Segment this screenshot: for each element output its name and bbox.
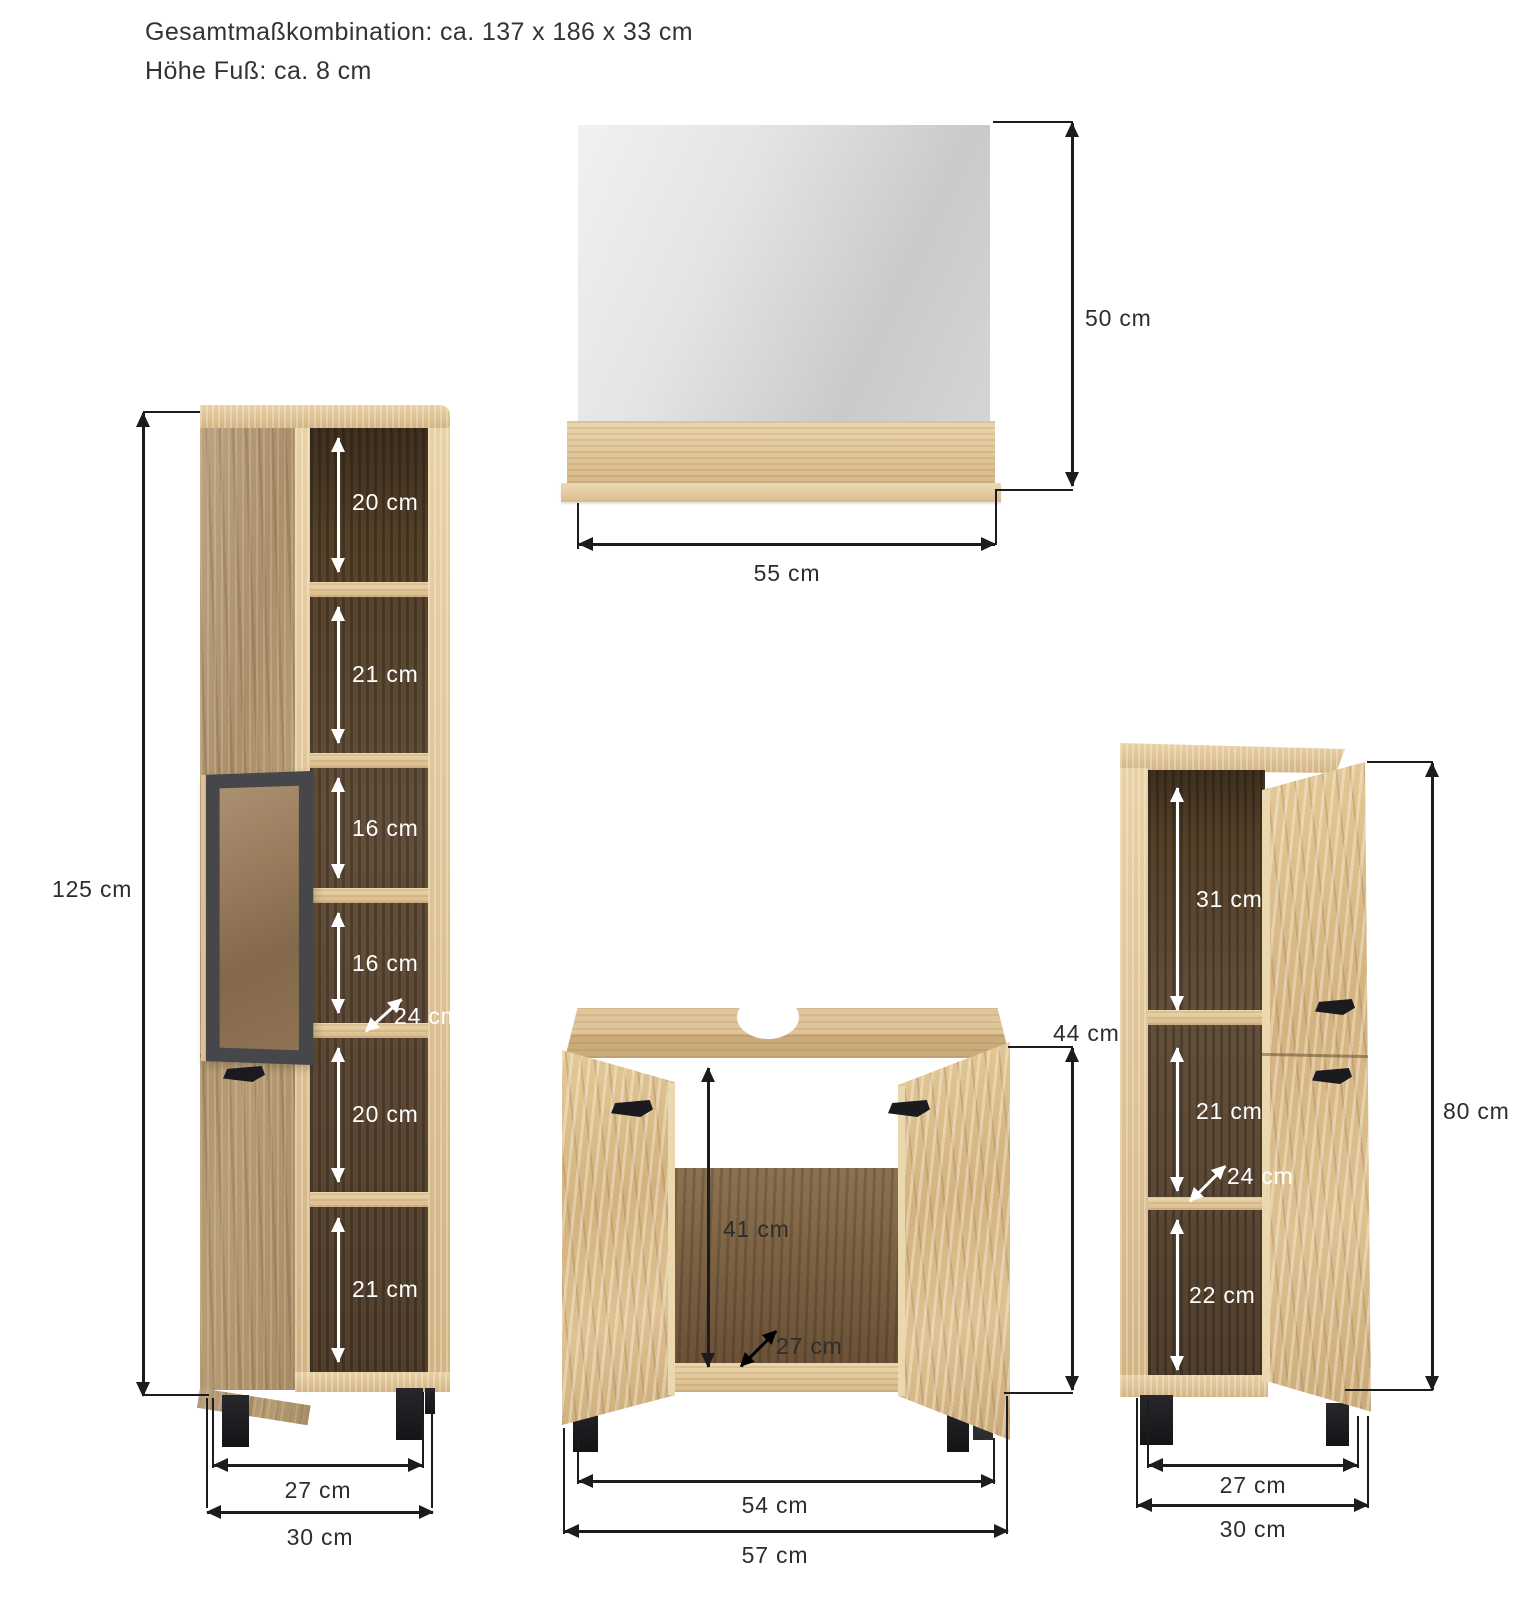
dim-side-height-line (1431, 763, 1434, 1390)
tall-comp3-label: 16 cm (352, 815, 419, 842)
tall-cabinet-leg-left (222, 1395, 249, 1447)
mirror-glass (578, 125, 990, 421)
side-comp3-arrow (1176, 1220, 1179, 1370)
dim-mirror-height-line (1071, 123, 1074, 486)
side-width-outer-label: 30 cm (1220, 1516, 1287, 1543)
dim-tall-height-leader-top (143, 411, 200, 413)
tall-cabinet-shelf-3 (310, 888, 428, 903)
tall-width-outer-label: 30 cm (287, 1524, 354, 1551)
dim-tall-ext-inner-right (422, 1392, 424, 1468)
side-comp2-label: 21 cm (1196, 1098, 1263, 1125)
dim-vanity-height-line (1071, 1048, 1074, 1390)
tall-cabinet-top-panel (200, 405, 450, 428)
vanity-pipe-notch (737, 995, 799, 1039)
side-comp2-arrow (1176, 1048, 1179, 1191)
mirror-shelf (567, 421, 995, 483)
side-cabinet-shelf-2 (1148, 1197, 1265, 1210)
dim-tall-width-outer-line (207, 1511, 433, 1514)
dim-vanity-height-leader-bottom (1004, 1392, 1073, 1394)
vanity-door-right-edge (898, 1086, 905, 1396)
side-cabinet-leg-right (1326, 1403, 1349, 1446)
tall-comp3-arrow (337, 778, 340, 878)
title-line-1: Gesamtmaßkombination: ca. 137 x 186 x 33… (145, 18, 693, 47)
vanity-door-left-edge (668, 1083, 675, 1395)
dim-tall-width-inner-line (214, 1464, 422, 1467)
side-comp1-label: 31 cm (1196, 886, 1263, 913)
tall-comp6-arrow (337, 1218, 340, 1362)
tall-width-inner-label: 27 cm (285, 1477, 352, 1504)
dim-side-height-leader-bottom (1345, 1389, 1433, 1391)
tall-height-label: 125 cm (52, 876, 130, 903)
furniture-dimension-diagram: Gesamtmaßkombination: ca. 137 x 186 x 33… (0, 0, 1518, 1600)
dim-side-width-outer-line (1138, 1504, 1368, 1507)
side-comp3-label: 22 cm (1189, 1282, 1256, 1309)
tall-comp1-arrow (337, 438, 340, 572)
dim-mirror-width-line (579, 543, 995, 546)
dim-vanity-inner-height-line (707, 1068, 710, 1367)
side-comp1-arrow (1176, 788, 1179, 1010)
mirror-shelf-lip (561, 483, 1001, 502)
dim-side-height-leader-top (1367, 761, 1433, 763)
tall-cabinet-glass-door (201, 771, 313, 1065)
vanity-inner-height-label: 41 cm (723, 1216, 790, 1243)
dim-tall-height-line (142, 413, 145, 1396)
vanity-width-outer-label: 57 cm (742, 1542, 809, 1569)
tall-cabinet-glass-pane (220, 786, 299, 1050)
dim-tall-ext-outer-right (431, 1392, 433, 1508)
side-cabinet-top-panel (1120, 743, 1345, 773)
dim-vanity-width-inner-line (579, 1480, 995, 1483)
vanity-width-inner-label: 54 cm (742, 1492, 809, 1519)
tall-comp2-arrow (337, 607, 340, 743)
dim-side-ext-outer-right (1367, 1416, 1369, 1508)
side-width-inner-label: 27 cm (1220, 1472, 1287, 1499)
vanity-height-label: 44 cm (1053, 1020, 1120, 1047)
tall-depth-label: 24 cm (394, 1003, 461, 1030)
tall-comp4-label: 16 cm (352, 950, 419, 977)
tall-cabinet-leg-right (396, 1388, 423, 1440)
dim-mirror-height-leader-top (993, 121, 1073, 123)
tall-comp2-label: 21 cm (352, 661, 419, 688)
dim-tall-height-leader-bottom (143, 1394, 209, 1396)
side-cabinet-door-edge (1262, 790, 1270, 1382)
side-cabinet-frame-left (1120, 768, 1148, 1395)
side-depth-label: 24 cm (1227, 1163, 1294, 1190)
side-cabinet-door (1262, 762, 1371, 1413)
tall-cabinet-shelf-1 (310, 582, 428, 597)
tall-comp5-arrow (337, 1048, 340, 1182)
dim-vanity-ext-outer-right (1006, 1396, 1008, 1534)
dim-mirror-height-leader-bottom (997, 489, 1073, 491)
vanity-depth-label: 27 cm (776, 1333, 843, 1360)
mirror-height-label: 50 cm (1085, 305, 1152, 332)
tall-cabinet-shelf-5 (310, 1192, 428, 1207)
mirror-width-label: 55 cm (754, 560, 821, 587)
side-cabinet-bottom-panel (1120, 1375, 1268, 1397)
tall-comp6-label: 21 cm (352, 1276, 419, 1303)
dim-vanity-width-outer-line (565, 1530, 1008, 1533)
dim-vanity-ext-outer-left (563, 1428, 565, 1534)
tall-cabinet-leg-back (425, 1388, 435, 1414)
tall-cabinet-frame-right (428, 428, 450, 1372)
title-line-2: Höhe Fuß: ca. 8 cm (145, 57, 372, 86)
dim-side-width-inner-line (1149, 1464, 1357, 1467)
dim-side-ext-outer-left (1136, 1398, 1138, 1508)
side-cabinet-leg-left (1140, 1395, 1173, 1445)
tall-comp4-arrow (337, 913, 340, 1013)
dim-tall-ext-outer-left (206, 1398, 208, 1508)
side-height-label: 80 cm (1443, 1098, 1510, 1125)
tall-comp1-label: 20 cm (352, 489, 419, 516)
side-cabinet-shelf-1 (1148, 1010, 1265, 1025)
tall-comp5-label: 20 cm (352, 1101, 419, 1128)
tall-cabinet-shelf-2 (310, 753, 428, 768)
